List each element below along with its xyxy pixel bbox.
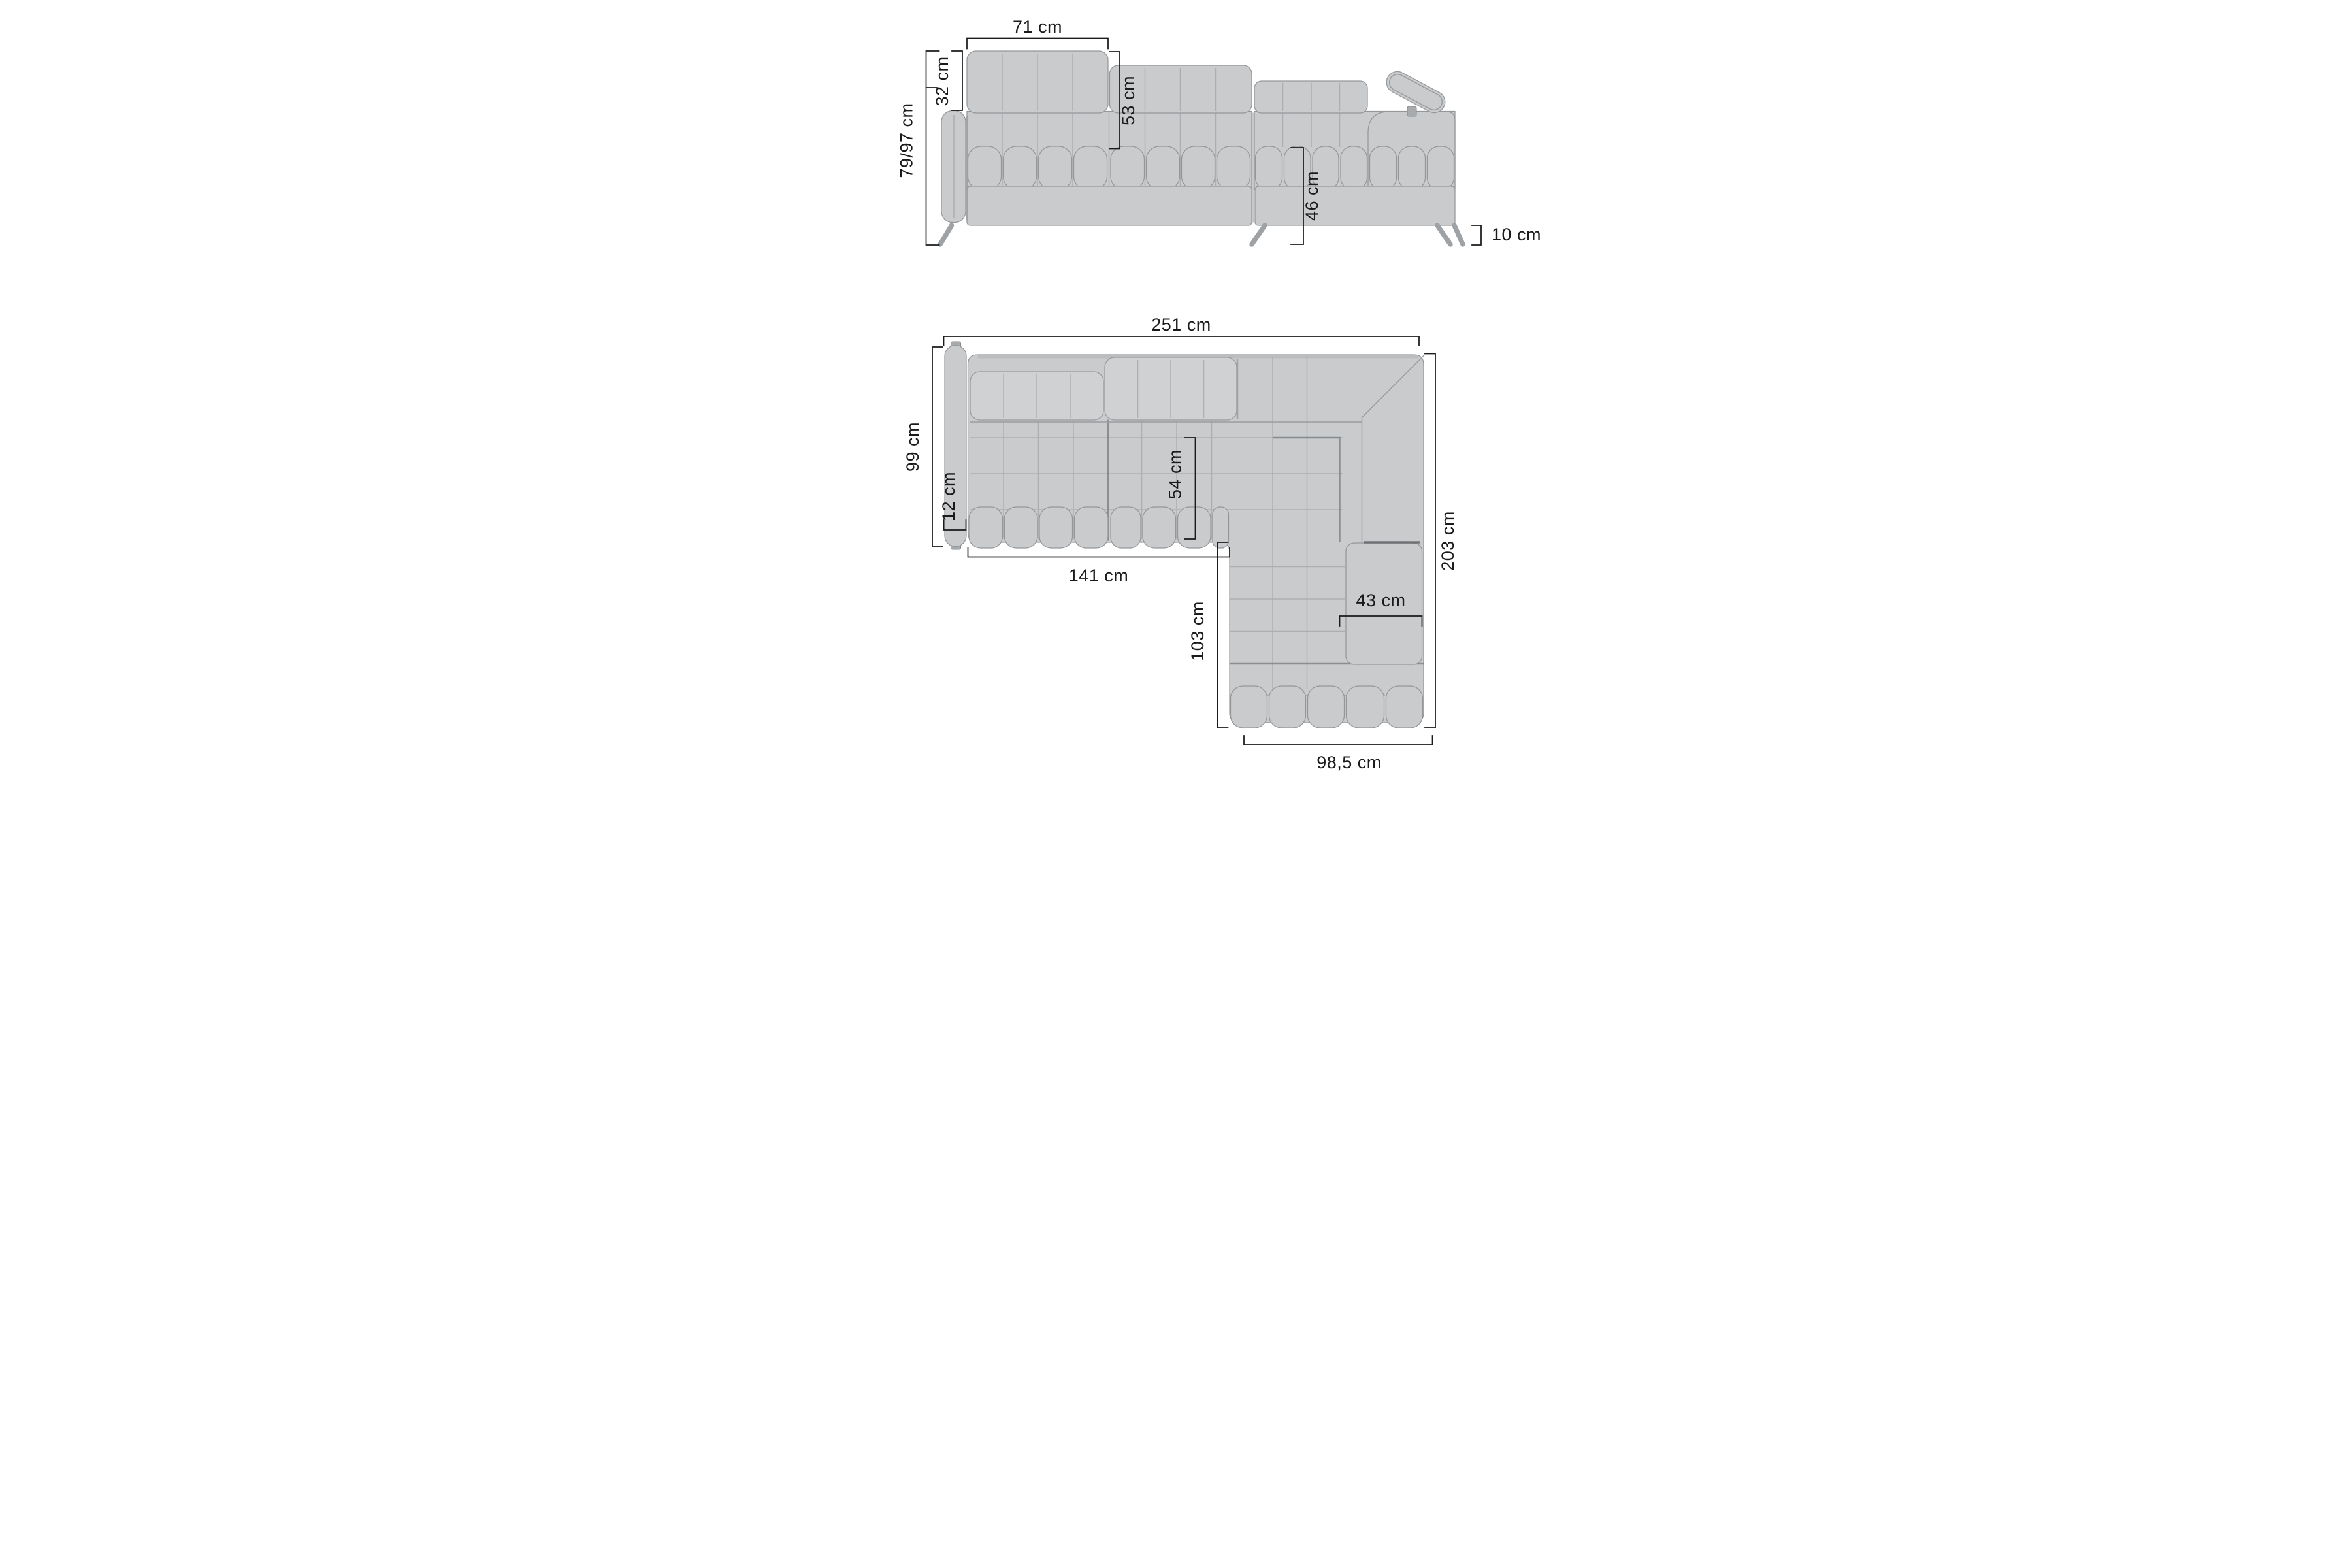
dim-label-leg-height: 10 cm	[1492, 225, 1541, 244]
pillow-hinge	[1407, 106, 1416, 116]
seat-cushion	[1256, 146, 1282, 189]
dim-label-headrest-height: 32 cm	[932, 56, 952, 106]
leg	[1252, 225, 1265, 244]
seat-cushion	[1039, 146, 1072, 189]
base-left	[967, 186, 1252, 225]
seat-cushion	[1182, 146, 1215, 189]
dim-label-chaise-width: 98,5 cm	[1316, 753, 1382, 772]
edge-cushion	[969, 507, 1003, 548]
edge-cushion	[1308, 686, 1345, 728]
edge-cushion	[1178, 507, 1211, 548]
seat-cushion	[1399, 146, 1426, 189]
edge-cushion	[1005, 507, 1038, 548]
diagram-canvas: 71 cm 32 cm 79/97 cm 53 cm 46 cm 10 cm	[588, 0, 1764, 784]
seat-cushion	[1428, 146, 1454, 189]
dim-chaise-length: 103 cm	[1188, 542, 1228, 728]
edge-cushion	[1269, 686, 1306, 728]
seat-cushion	[968, 146, 1002, 189]
edge-cushion	[1347, 686, 1384, 728]
dim-total-width: 251 cm	[944, 315, 1420, 346]
dim-side-depth: 99 cm	[903, 347, 943, 547]
legs	[940, 225, 1463, 244]
dim-leg-height: 10 cm	[1472, 225, 1541, 245]
leg	[940, 225, 952, 244]
dim-seat-width: 141 cm	[968, 548, 1230, 586]
seat-cushion	[1074, 146, 1107, 189]
dim-total-depth: 203 cm	[1425, 354, 1458, 728]
dim-label-headrest-width: 71 cm	[1013, 17, 1062, 37]
dim-label-backrest-height: 53 cm	[1119, 76, 1138, 125]
chaise-end-cushions	[1231, 686, 1423, 728]
dim-label-seat-depth: 54 cm	[1166, 449, 1185, 499]
dim-label-seat-height: 46 cm	[1302, 171, 1322, 221]
leg	[1454, 225, 1463, 244]
edge-cushion	[1143, 507, 1176, 548]
base-right	[1255, 186, 1455, 225]
dim-label-total-depth: 203 cm	[1438, 511, 1458, 571]
seat-cushions	[968, 146, 1454, 189]
leg	[1437, 225, 1450, 244]
dim-label-chaise-length: 103 cm	[1188, 601, 1207, 661]
dim-label-armrest-width: 12 cm	[939, 472, 958, 521]
seat-cushion	[1111, 146, 1145, 189]
edge-cushion	[1231, 686, 1267, 728]
edge-cushion	[1075, 507, 1109, 548]
dim-headrest-width: 71 cm	[967, 17, 1108, 49]
dim-label-corner-cushion-width: 43 cm	[1356, 591, 1405, 610]
dim-label-seat-width: 141 cm	[1069, 566, 1129, 585]
seat-cushion	[1147, 146, 1180, 189]
seat-cushion	[1370, 146, 1397, 189]
seat-cushion	[1004, 146, 1037, 189]
front-view: 71 cm 32 cm 79/97 cm 53 cm 46 cm 10 cm	[897, 17, 1542, 245]
dim-chaise-width: 98,5 cm	[1244, 736, 1433, 772]
dim-label-total-width: 251 cm	[1151, 315, 1211, 335]
dim-label-side-depth: 99 cm	[903, 422, 923, 472]
sofa-dimensions-diagram: 71 cm 32 cm 79/97 cm 53 cm 46 cm 10 cm	[588, 0, 1764, 784]
dim-headrest-height: 32 cm	[932, 51, 962, 110]
edge-cushion	[1386, 686, 1423, 728]
front-edge-cushions	[969, 507, 1229, 548]
edge-cushion	[1039, 507, 1073, 548]
top-view: 251 cm 99 cm 12 cm 54 cm 141 cm 103 cm	[903, 315, 1458, 772]
dim-label-height-range: 79/97 cm	[897, 103, 917, 178]
seat-cushion	[1217, 146, 1250, 189]
edge-cushion	[1111, 507, 1141, 548]
seat-cushion	[1341, 146, 1367, 189]
